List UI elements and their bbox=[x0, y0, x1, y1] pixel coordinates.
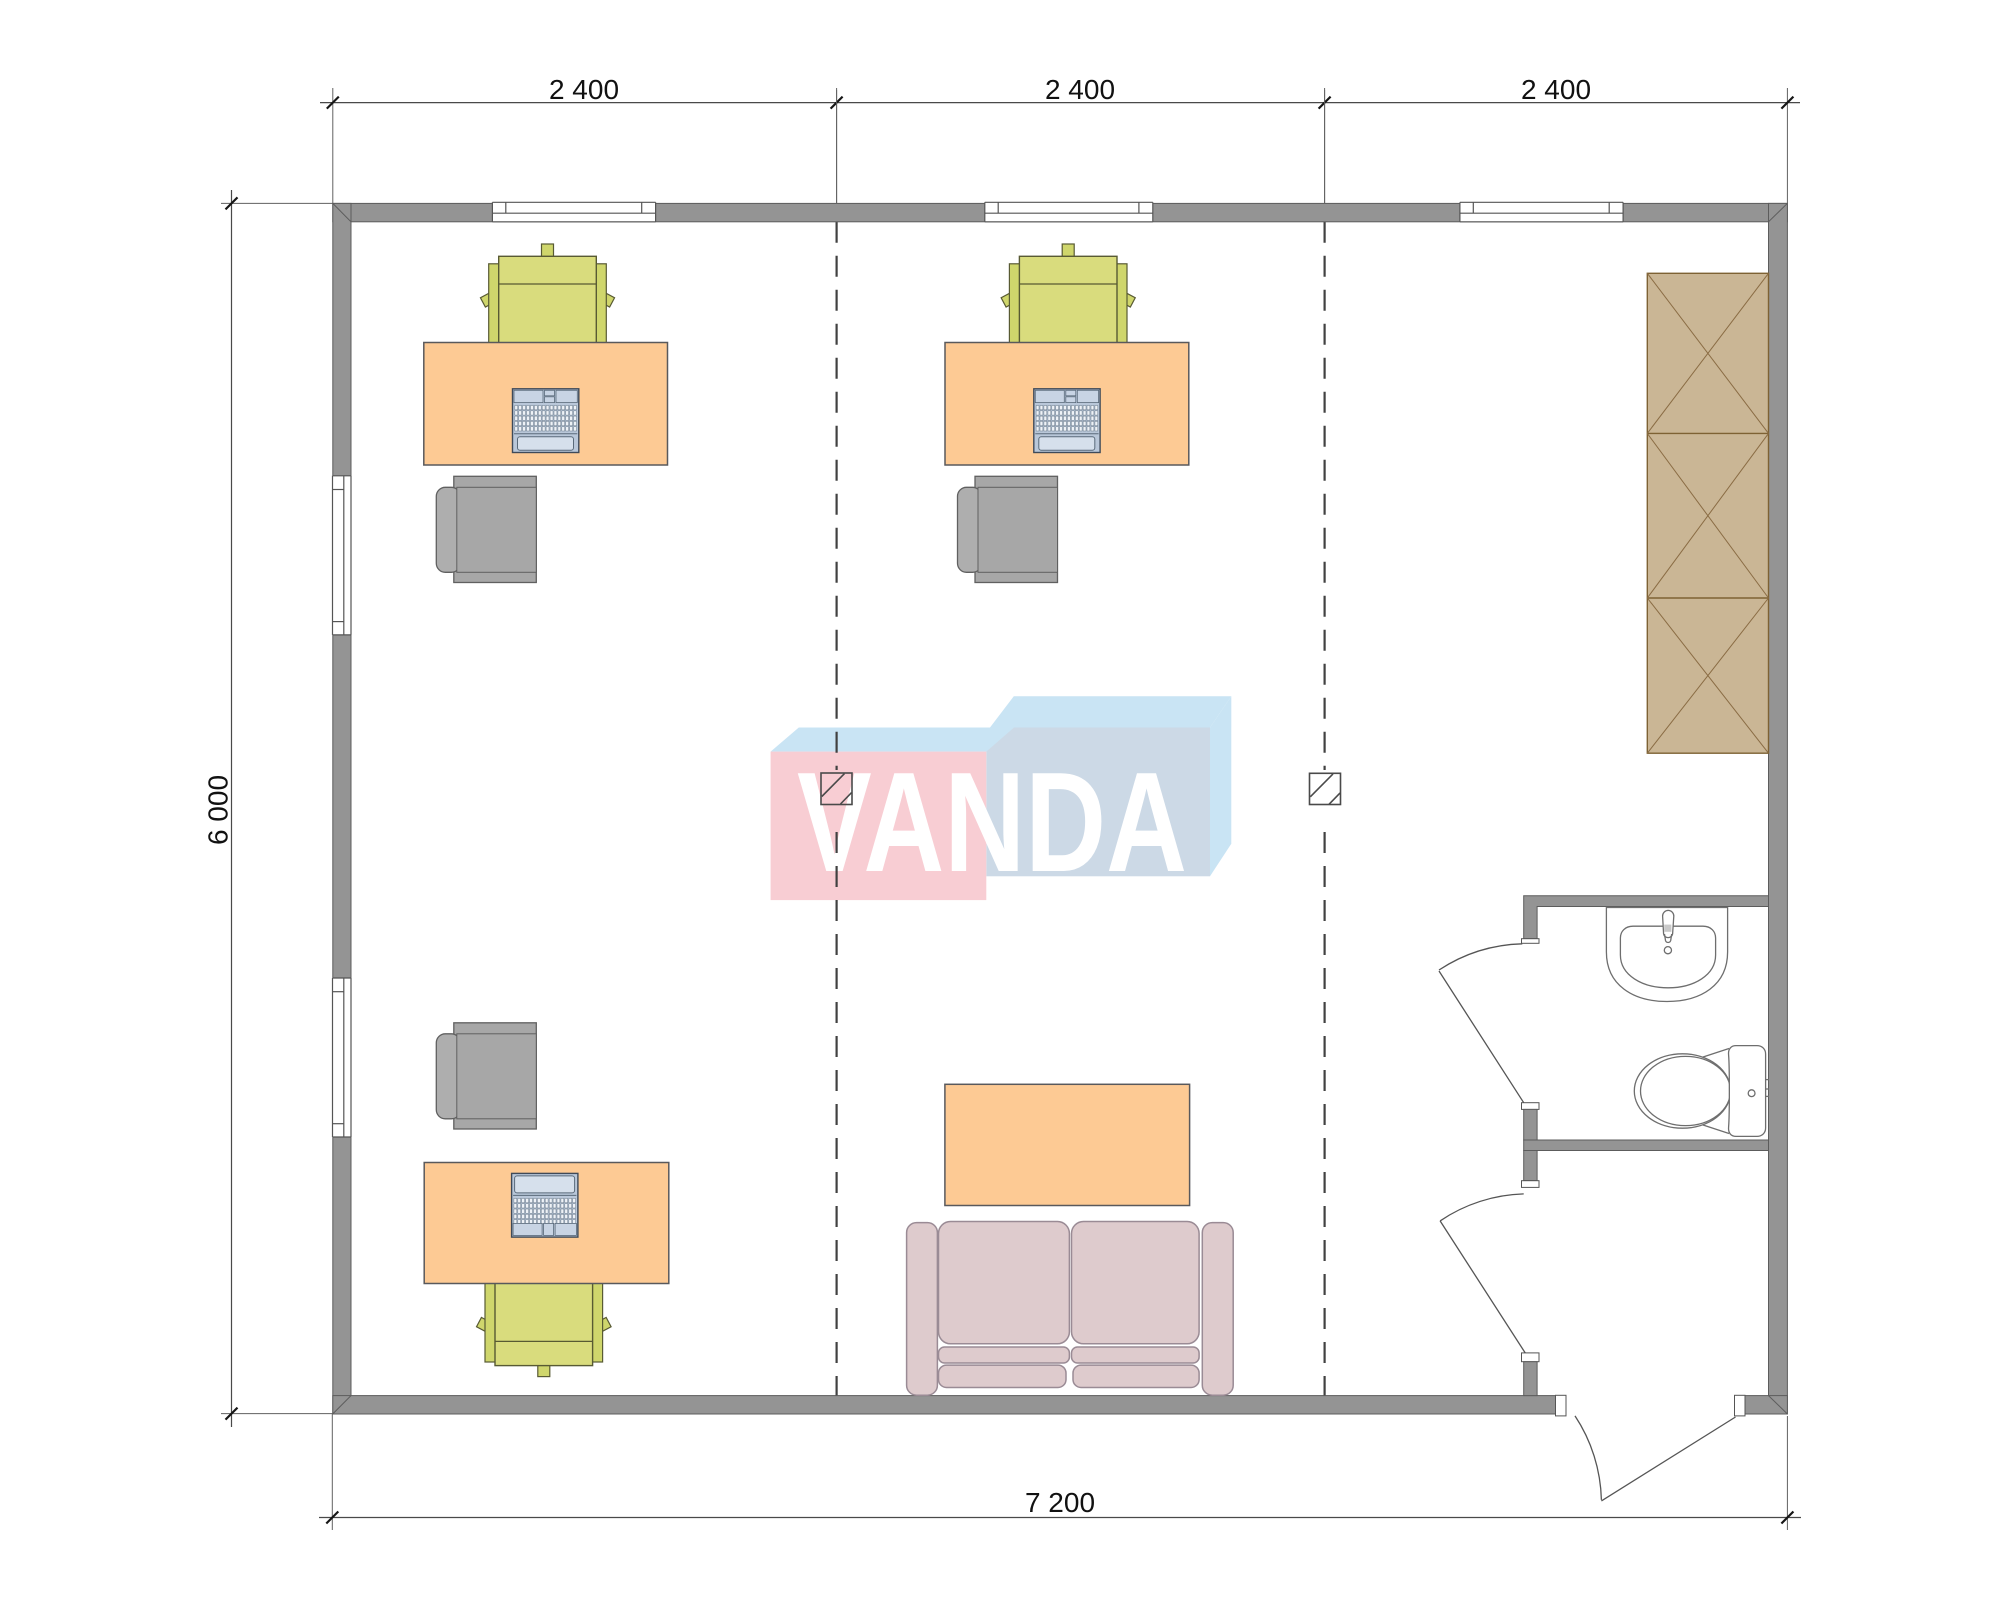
svg-text:2 400: 2 400 bbox=[1045, 74, 1115, 105]
svg-text:2 400: 2 400 bbox=[1521, 74, 1591, 105]
svg-text:7 200: 7 200 bbox=[1025, 1487, 1095, 1518]
svg-text:VANDA: VANDA bbox=[797, 743, 1187, 902]
svg-text:2 400: 2 400 bbox=[549, 74, 619, 105]
svg-text:6 000: 6 000 bbox=[203, 775, 234, 845]
